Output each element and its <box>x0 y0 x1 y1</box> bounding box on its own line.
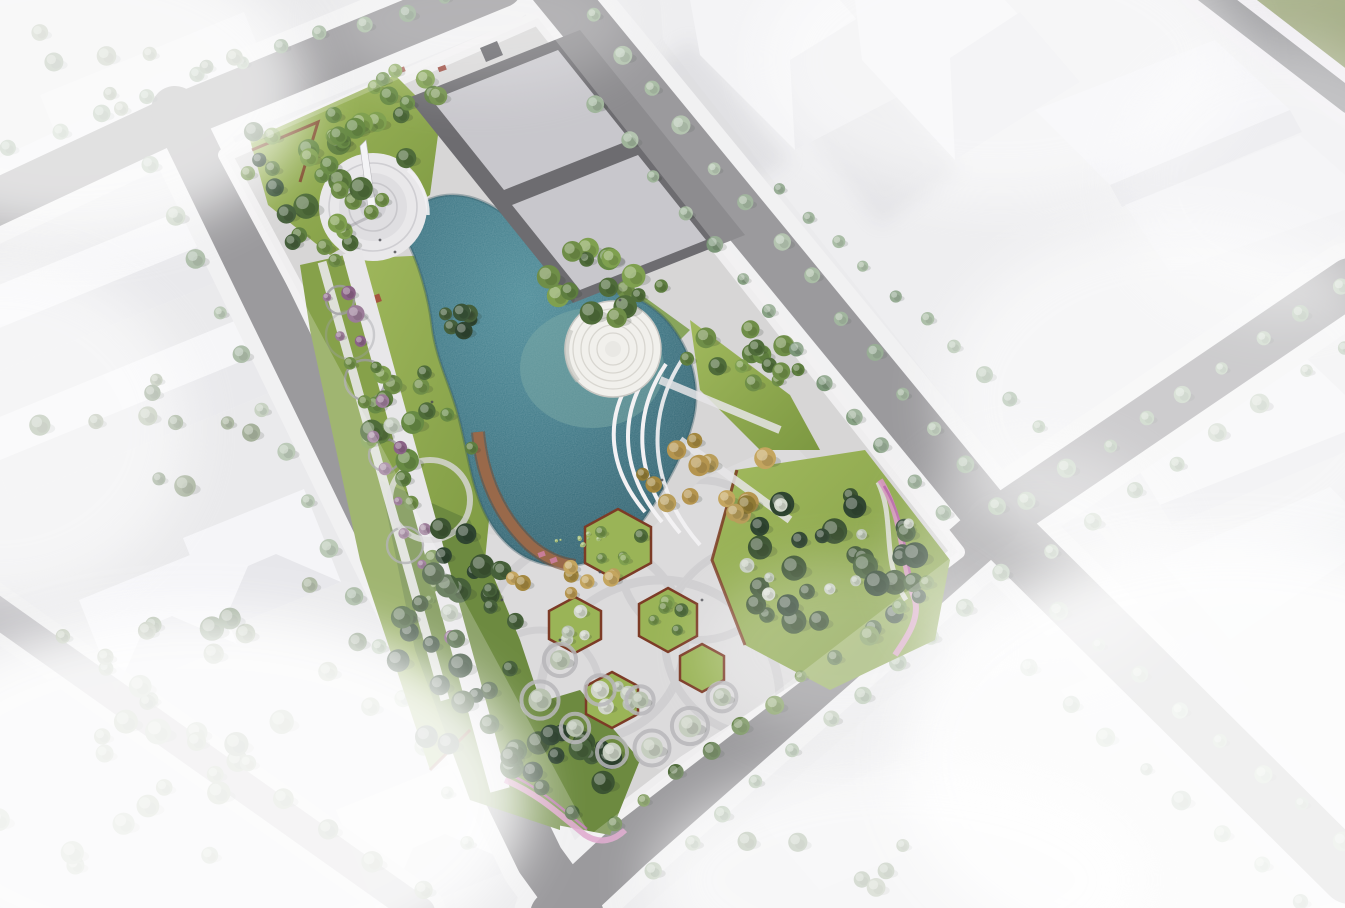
render-canvas: Aerial masterplan render — urban lakefro… <box>0 0 1345 908</box>
aerial-park-render: Aerial masterplan render — urban lakefro… <box>0 0 1345 908</box>
